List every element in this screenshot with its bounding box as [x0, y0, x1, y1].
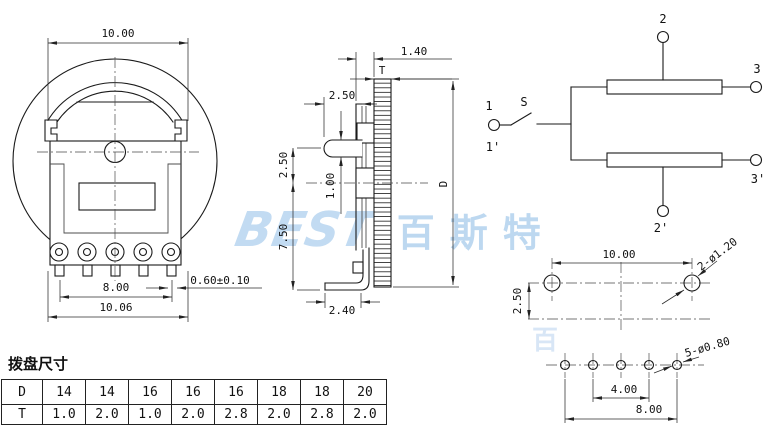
row-label-d: D — [2, 380, 43, 405]
dim-pinhole-outer: 8.00 — [636, 403, 663, 416]
dim-width-top: 10.00 — [101, 27, 134, 40]
table-cell: 2.0 — [172, 405, 215, 425]
row-label-t: T — [2, 405, 43, 425]
resistive-element-top — [607, 80, 722, 94]
dim-hole-span: 10.00 — [602, 248, 635, 261]
table-cell: 2.0 — [344, 405, 387, 425]
terminal-3-node — [751, 82, 762, 93]
dim-pin-width: 0.60±0.10 — [190, 274, 250, 287]
dim-lug-length: 2.50 — [329, 89, 356, 102]
table-cell: 18 — [301, 380, 344, 405]
label-switch-s: S — [520, 95, 527, 109]
dim-row-offset: 2.50 — [511, 288, 524, 315]
dim-wheel-diameter: D — [437, 181, 450, 188]
side-view: 1.40 T 2.50 2.50 1.00 7.50 — [277, 45, 459, 317]
table-row-d: D 14 14 16 16 16 18 18 20 — [2, 380, 387, 405]
pcb-layout-mount-holes: 10.00 2.50 2-ø1.20 — [511, 235, 740, 331]
callout-mount-holes: 2-ø1.20 — [695, 235, 740, 273]
switch-blade — [511, 113, 531, 125]
table-cell: 20 — [344, 380, 387, 405]
label-terminal-3p: 3' — [751, 172, 765, 186]
table-cell: 16 — [129, 380, 172, 405]
dim-pinhole-inner: 4.00 — [611, 383, 638, 396]
mount-clip-left — [45, 120, 57, 141]
dim-wheel-offset: 1.40 — [401, 45, 428, 58]
terminal-2-node — [658, 32, 669, 43]
resistive-element-bottom — [607, 153, 722, 167]
pcb-layout-pin-holes: 4.00 8.00 5-ø0.80 — [546, 335, 731, 423]
table-title: 拨盘尺寸 — [8, 353, 68, 374]
table-cell: 16 — [172, 380, 215, 405]
mount-clip-right — [175, 120, 187, 141]
table-cell: 2.8 — [301, 405, 344, 425]
terminal-2p-node — [658, 206, 669, 217]
table-cell: 1.0 — [129, 405, 172, 425]
terminal-3p-node — [751, 155, 762, 166]
dial-size-table: D 14 14 16 16 16 18 18 20 T 1.0 2.0 1.0 … — [1, 379, 387, 425]
label-terminal-1: 1 — [485, 99, 492, 113]
label-terminal-3: 3 — [753, 62, 760, 76]
table-cell: 2.0 — [86, 405, 129, 425]
dim-pin-span: 8.00 — [103, 281, 130, 294]
table-cell: 14 — [86, 380, 129, 405]
table-cell: 1.0 — [43, 405, 86, 425]
engineering-drawing-page: BEST 百斯特 百 — [0, 0, 767, 431]
table-cell: 14 — [43, 380, 86, 405]
dim-wheel-thickness: T — [379, 64, 386, 77]
label-terminal-1p: 1' — [486, 140, 500, 154]
table-cell: 16 — [215, 380, 258, 405]
side-tab — [353, 262, 363, 273]
circuit-schematic: 1 S 1' 2 3 3' 2' — [485, 12, 765, 235]
front-view: 10.00 8.00 10.06 0.60±0.10 — [13, 27, 262, 322]
dim-width-bottom: 10.06 — [99, 301, 132, 314]
label-terminal-2p: 2' — [654, 221, 668, 235]
terminal-1-node — [489, 120, 500, 131]
solder-pins — [55, 265, 176, 276]
callout-pin-holes: 5-ø0.80 — [683, 335, 731, 360]
table-cell: 2.8 — [215, 405, 258, 425]
dim-lug-to-center: 2.50 — [277, 152, 290, 179]
table-row-t: T 1.0 2.0 1.0 2.0 2.8 2.0 2.8 2.0 — [2, 405, 387, 425]
cad-drawing: 10.00 8.00 10.06 0.60±0.10 — [0, 0, 767, 431]
dim-foot-length: 2.40 — [329, 304, 356, 317]
table-cell: 18 — [258, 380, 301, 405]
label-terminal-2: 2 — [659, 12, 666, 26]
dim-lug-thickness: 1.00 — [324, 173, 337, 200]
table-cell: 2.0 — [258, 405, 301, 425]
terminal-lug — [324, 140, 362, 157]
dim-center-to-bottom: 7.50 — [277, 224, 290, 251]
